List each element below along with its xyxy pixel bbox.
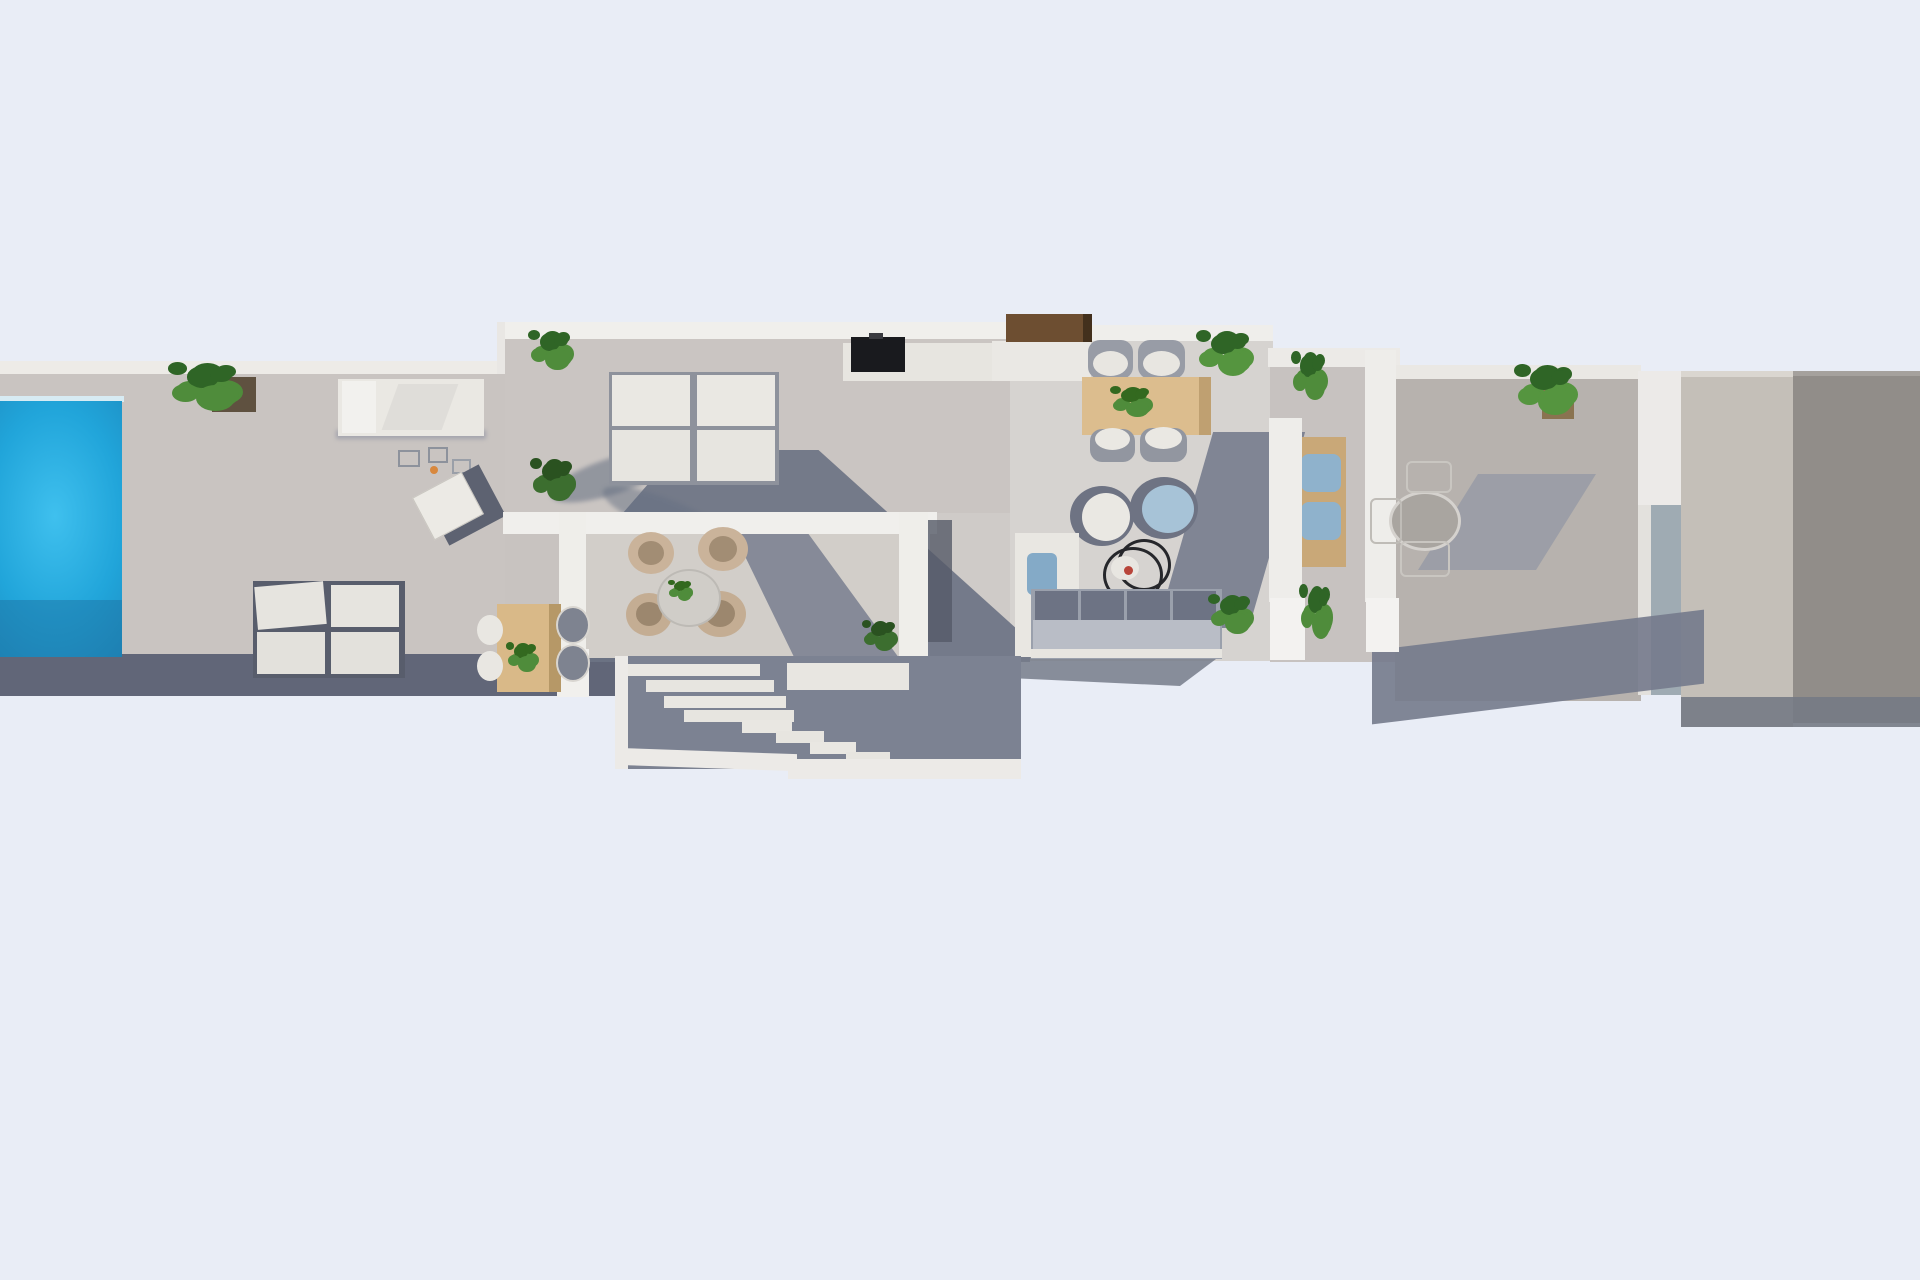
wall-plant-top-leaf xyxy=(545,349,569,370)
partition-wall-2 xyxy=(1365,350,1396,602)
louver-cushion-2 xyxy=(1301,502,1341,540)
small-orange-item xyxy=(430,466,438,474)
mid-bottom-shadow xyxy=(1020,656,1220,686)
partition-plant xyxy=(1299,584,1345,658)
stair-plant-leaf xyxy=(882,624,892,633)
deck-plant-leaf xyxy=(1514,364,1531,377)
dining-plant-large-leaf xyxy=(1229,335,1246,348)
pouf-white xyxy=(1082,493,1130,541)
sunlounger-pad-1 xyxy=(254,581,326,630)
wall-plant-top xyxy=(528,330,590,384)
aggregate-strip xyxy=(1793,371,1920,723)
sofa-corner-plant-leaf xyxy=(1234,599,1247,611)
sofa-corner-plant-leaf xyxy=(1225,613,1249,634)
wire-table-accent xyxy=(1124,566,1133,575)
dining-plant-small-leaf xyxy=(1291,351,1301,364)
pouf-blue xyxy=(1142,485,1194,533)
bistro-chair-2 xyxy=(1400,541,1450,577)
sofa-right-front xyxy=(1031,649,1222,658)
pool-bottom-shade xyxy=(0,600,122,657)
wicker-seat-tr xyxy=(709,536,737,562)
deck-plant-leaf xyxy=(1538,388,1572,415)
dining-table-plant-leaf xyxy=(1110,386,1121,394)
sofa-right-seat xyxy=(1033,620,1220,651)
bistro-chair-1 xyxy=(1406,461,1452,493)
kitchen-island-edge xyxy=(1083,314,1092,342)
bar-stool-grey-2 xyxy=(556,644,590,682)
bar-table-plant xyxy=(506,642,550,682)
dining-plant-large-leaf xyxy=(1218,352,1248,376)
daybed-pillow xyxy=(342,381,376,433)
wall-plant-mid-leaf xyxy=(530,458,542,469)
partition-wall-1 xyxy=(1269,418,1302,602)
stair-bottom-wall-2 xyxy=(788,759,1021,779)
right-bottom-shadow xyxy=(1681,697,1920,727)
sofa-corner-plant-leaf xyxy=(1208,594,1220,604)
terrace-plant xyxy=(168,362,268,428)
dark-gap-strip xyxy=(928,520,952,642)
small-chair-1 xyxy=(398,450,420,467)
dining-plant-large-leaf xyxy=(1196,330,1211,342)
stair-step-1 xyxy=(628,664,760,676)
living-sofa-pad-3 xyxy=(612,430,690,481)
dining-table-plant-leaf xyxy=(1126,401,1149,417)
stair-landing-white xyxy=(787,663,909,690)
sofa-right-cushion-1 xyxy=(1035,591,1078,620)
terrace-plant-leaf xyxy=(196,385,235,411)
wall-plant-mid xyxy=(530,458,592,516)
bistro-chair-3 xyxy=(1370,498,1402,544)
bar-stool-white-1 xyxy=(477,615,503,645)
partition-plant-leaf xyxy=(1312,610,1330,639)
terrace-plant-leaf xyxy=(168,362,187,375)
wall-plant-mid-leaf xyxy=(556,463,569,476)
terrace-plant-leaf xyxy=(210,368,232,382)
round-table-plant-leaf xyxy=(678,590,691,601)
louver-cushion-1 xyxy=(1301,454,1341,492)
sofa-right-cushion-2 xyxy=(1081,591,1124,620)
wall-plant-top-leaf xyxy=(554,335,567,347)
stair-plant xyxy=(862,620,910,662)
deck-right-wall xyxy=(1638,371,1682,511)
round-table-plant xyxy=(668,580,702,608)
dining-plant-large xyxy=(1196,330,1274,392)
sofa-corner-plant xyxy=(1208,594,1270,648)
kitchen-counter xyxy=(992,341,1091,381)
dining-plant-small xyxy=(1291,351,1341,417)
bar-stool-white-2 xyxy=(477,651,503,681)
stair-step-2 xyxy=(646,680,774,692)
deck-plant-leaf xyxy=(1551,370,1570,385)
wall-plant-mid-leaf xyxy=(547,478,571,501)
living-sofa-pad-2 xyxy=(697,375,775,426)
bar-table-plant-leaf xyxy=(518,656,535,672)
sunlounger-pad-2 xyxy=(331,585,399,627)
partition-wall-2-cap xyxy=(1366,598,1399,652)
bar-table-plant-leaf xyxy=(506,642,514,650)
tv-mount xyxy=(869,333,883,339)
dining-table-plant xyxy=(1110,386,1168,428)
bar-stool-grey-1 xyxy=(556,606,590,644)
partition-plant-leaf xyxy=(1299,584,1308,598)
dining-seat-top-1 xyxy=(1093,351,1128,376)
stair-step-3 xyxy=(664,696,786,708)
concrete-top-edge xyxy=(1681,371,1793,377)
dining-plant-small-leaf xyxy=(1305,374,1325,400)
stair-plant-leaf xyxy=(862,620,871,628)
sofa-right-cushion-3 xyxy=(1127,591,1170,620)
living-sofa-pad-1 xyxy=(612,375,690,426)
dining-table-plant-leaf xyxy=(1135,390,1148,399)
living-sofa-pad-4 xyxy=(697,430,775,481)
dining-seat-top-2 xyxy=(1143,351,1180,376)
small-chair-2 xyxy=(428,447,448,463)
stair-plant-leaf xyxy=(875,635,894,651)
aggregate-top-edge xyxy=(1793,371,1920,376)
dining-plant-small-leaf xyxy=(1312,357,1323,371)
floorplan-stage xyxy=(0,0,1920,1280)
deck-plant xyxy=(1514,364,1600,432)
sunlounger-pad-3 xyxy=(257,632,325,674)
wall-plant-top-leaf xyxy=(528,330,540,340)
wicker-seat-tl xyxy=(638,541,664,565)
dining-seat-bottom-2 xyxy=(1145,427,1182,449)
sunlounger-pad-4 xyxy=(331,632,399,674)
dining-seat-bottom-1 xyxy=(1095,428,1130,450)
kitchen-island-brown xyxy=(1006,314,1091,342)
tv-screen xyxy=(851,337,905,372)
